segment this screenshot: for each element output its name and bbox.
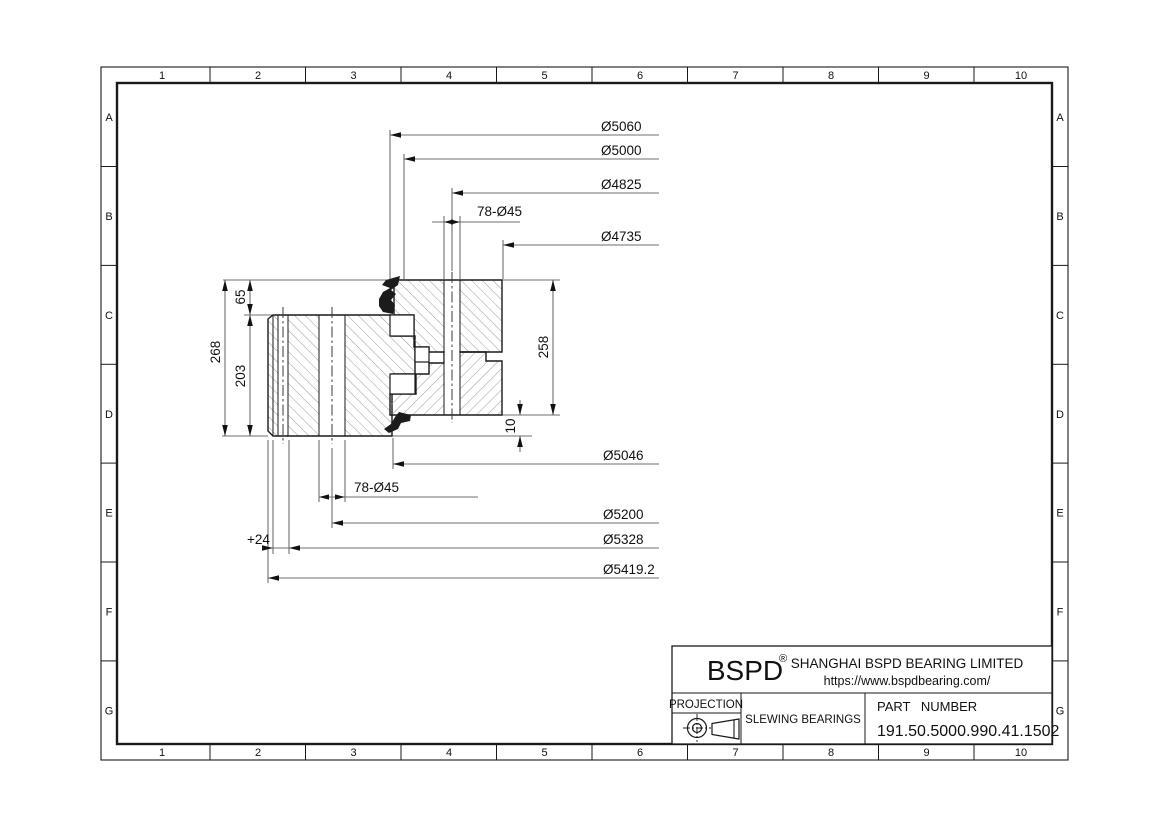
dim-label-203: 203 [233, 365, 248, 388]
dim-label-d5328: Ø5328 [603, 532, 644, 547]
part-number-label: PART NUMBER [877, 699, 977, 714]
grid-row-label: B [105, 211, 112, 223]
grid-row-label: A [105, 112, 113, 124]
website-link: https://www.bspdbearing.com/ [824, 674, 991, 688]
grid-row-label: E [1056, 508, 1063, 520]
grid-row-label: E [105, 508, 112, 520]
grid-col-label: 2 [255, 747, 261, 759]
grid-col-label: 10 [1015, 747, 1027, 759]
bearing-cross-section [268, 272, 502, 444]
dim-label-d5419: Ø5419.2 [603, 562, 655, 577]
grid-col-label: 4 [446, 70, 452, 82]
dim-label-bolt-bottom: 78-Ø45 [354, 480, 399, 495]
registered-mark: ® [779, 653, 787, 665]
dim-label-268: 268 [208, 341, 223, 364]
grid-row-label: D [1056, 409, 1064, 421]
dim-label-d5060: Ø5060 [601, 119, 642, 134]
drawing-sheet: 1 2 3 4 5 6 7 8 9 10 1 2 3 4 5 6 7 8 9 1… [0, 0, 1170, 827]
grid-row-label: G [1056, 706, 1065, 718]
grid-col-label: 6 [637, 747, 643, 759]
grid-col-label: 7 [732, 70, 738, 82]
company-name: SHANGHAI BSPD BEARING LIMITED [791, 656, 1024, 671]
dim-label-65: 65 [233, 289, 248, 304]
projection-label: PROJECTION [669, 699, 743, 711]
dim-label-bolt-top: 78-Ø45 [477, 204, 522, 219]
dim-label-258: 258 [536, 336, 551, 359]
grid-col-label: 9 [923, 747, 929, 759]
grid-col-label: 5 [541, 70, 547, 82]
part-number-value: 191.50.5000.990.41.1502 [877, 723, 1060, 740]
grid-col-label: 5 [541, 747, 547, 759]
grid-col-label: 1 [159, 70, 165, 82]
grid-col-label: 9 [923, 70, 929, 82]
company-logo: BSPD [707, 655, 783, 686]
grid-row-label: C [105, 310, 113, 322]
grid-row-label: B [1056, 211, 1063, 223]
grid-col-label: 1 [159, 747, 165, 759]
grid-row-label: A [1056, 112, 1064, 124]
grid-row-label: F [1057, 607, 1064, 619]
lower-axial-roller [390, 374, 415, 394]
product-type-label: SLEWING BEARINGS [745, 714, 861, 726]
grid-col-label: 7 [732, 747, 738, 759]
grid-col-label: 2 [255, 70, 261, 82]
grid-col-label: 8 [828, 747, 834, 759]
grid-col-label: 10 [1015, 70, 1027, 82]
grid-col-label: 3 [350, 747, 356, 759]
dim-label-d4825: Ø4825 [601, 177, 642, 192]
grid-row-label: D [105, 409, 113, 421]
dim-label-10: 10 [503, 418, 518, 433]
grid-col-label: 6 [637, 70, 643, 82]
engineering-drawing: 1 2 3 4 5 6 7 8 9 10 1 2 3 4 5 6 7 8 9 1… [0, 0, 1170, 827]
grid-col-label: 3 [350, 70, 356, 82]
dim-label-plus24: +24 [247, 532, 270, 547]
grid-row-label: C [1056, 310, 1064, 322]
title-block: BSPD ® SHANGHAI BSPD BEARING LIMITED htt… [669, 646, 1060, 744]
grid-row-label: F [106, 607, 113, 619]
grid-row-label: G [105, 706, 114, 718]
upper-axial-roller [390, 315, 414, 336]
dim-label-d5200: Ø5200 [603, 507, 644, 522]
grid-col-label: 8 [828, 70, 834, 82]
radial-roller [415, 347, 429, 362]
dim-label-d5000: Ø5000 [601, 143, 642, 158]
dim-label-d4735: Ø4735 [601, 229, 642, 244]
grid-col-label: 4 [446, 747, 452, 759]
dim-label-d5046: Ø5046 [603, 448, 644, 463]
